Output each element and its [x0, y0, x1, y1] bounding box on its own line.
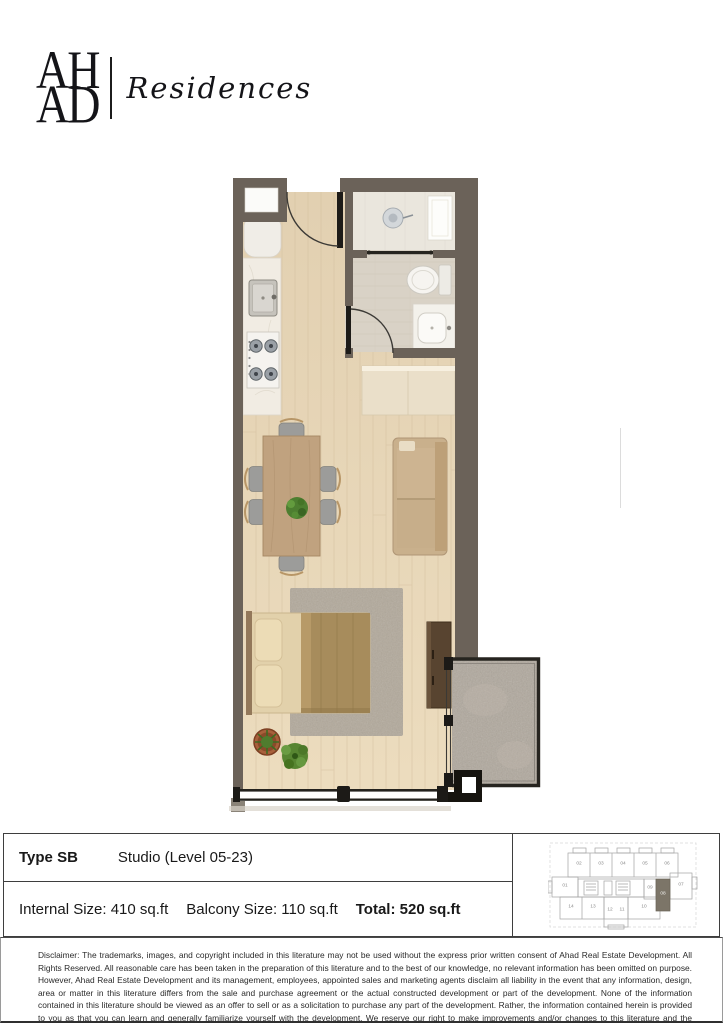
logo-divider	[110, 57, 112, 119]
kitchen-window	[245, 188, 278, 212]
keyplan-units: 0102030405060708091011121314	[548, 839, 698, 931]
keyplan-diagram	[548, 839, 698, 931]
fridge	[244, 216, 281, 257]
keyplan-unit-12: 12	[607, 909, 612, 914]
brochure-page: AH AD Residences	[0, 0, 724, 1024]
unit-type-label: Type SB	[19, 849, 78, 866]
keyplan-unit-05: 05	[642, 863, 647, 868]
stove	[247, 332, 279, 388]
keyplan-unit-13: 13	[590, 906, 595, 911]
kitchen	[243, 216, 281, 415]
unit-description: Studio (Level 05-23)	[118, 849, 253, 866]
floor-plan	[225, 170, 545, 820]
keyplan-cell: 0102030405060708091011121314	[513, 834, 719, 936]
keyplan-unit-14: 14	[568, 906, 573, 911]
spec-text-cell: Type SB Studio (Level 05-23) Internal Si…	[4, 834, 513, 936]
brand-monogram: AH AD	[36, 54, 98, 121]
spec-row-type: Type SB Studio (Level 05-23)	[4, 834, 512, 882]
dining-table	[263, 436, 320, 556]
disclaimer-text: Disclaimer: The trademarks, images, and …	[0, 937, 723, 1023]
balcony	[444, 657, 540, 802]
brand-logo: AH AD Residences	[36, 44, 312, 132]
potted-plant-1	[254, 729, 280, 755]
keyplan-unit-11: 11	[620, 909, 625, 914]
keyplan-unit-08: 08	[660, 893, 665, 898]
balcony-size: Balcony Size: 110 sq.ft	[186, 901, 337, 918]
vanity-sink	[413, 304, 455, 352]
keyplan-unit-01: 01	[562, 885, 567, 890]
table-plant	[286, 497, 308, 519]
wardrobe	[362, 366, 455, 415]
keyplan-unit-04: 04	[620, 863, 625, 868]
window-wall	[229, 786, 451, 811]
internal-size: Internal Size: 410 sq.ft	[19, 901, 168, 918]
keyplan-unit-02: 02	[576, 863, 581, 868]
bed	[246, 611, 370, 715]
monogram-line-2: AD	[36, 88, 98, 122]
keyplan-unit-10: 10	[641, 906, 646, 911]
spec-row-sizes: Internal Size: 410 sq.ft Balcony Size: 1…	[4, 882, 512, 936]
keyplan-unit-07: 07	[678, 884, 683, 889]
total-size: Total: 520 sq.ft	[356, 901, 461, 918]
brand-wordmark: Residences	[126, 71, 312, 105]
keyplan-unit-09: 09	[647, 887, 652, 892]
scan-artifact-line	[620, 428, 621, 508]
shower-glass-door	[367, 251, 433, 255]
toilet	[407, 265, 451, 295]
keyplan-unit-03: 03	[598, 863, 603, 868]
unit-spec-table: Type SB Studio (Level 05-23) Internal Si…	[3, 833, 720, 937]
bathroom-niche	[428, 196, 452, 240]
potted-plant-2	[281, 743, 308, 769]
keyplan-unit-06: 06	[664, 863, 669, 868]
sofa	[393, 438, 447, 555]
kitchen-sink	[249, 280, 277, 316]
bathroom	[345, 192, 455, 352]
